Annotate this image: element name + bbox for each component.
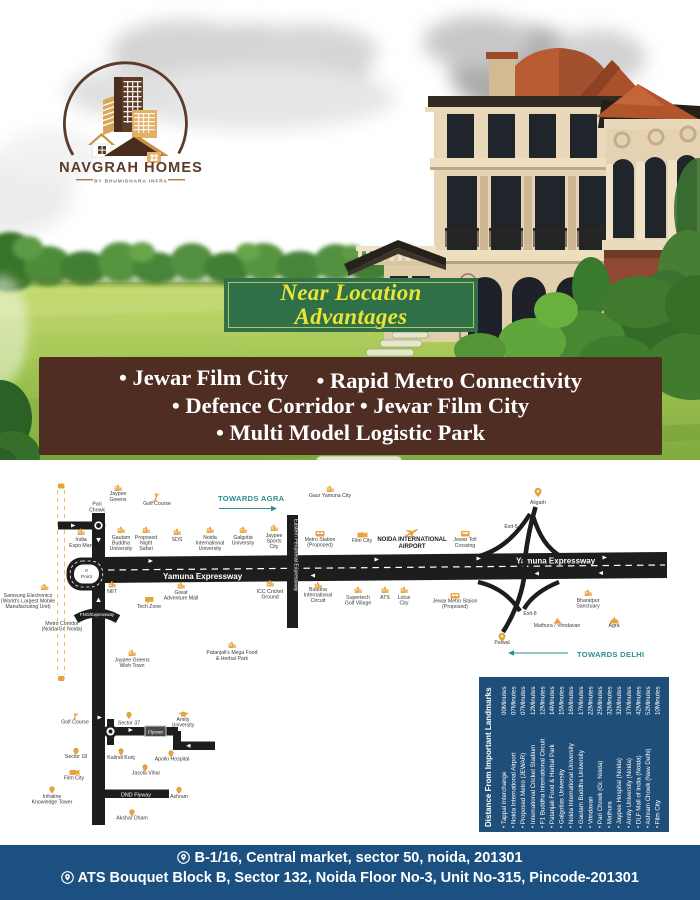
svg-text:07Minutes: 07Minutes bbox=[520, 686, 527, 715]
svg-text:• Patanjali Food & Herbal Park: • Patanjali Food & Herbal Park bbox=[549, 743, 556, 828]
svg-text:Greens: Greens bbox=[109, 497, 126, 503]
svg-text:16Minutes: 16Minutes bbox=[568, 686, 575, 715]
svg-text:07Minutes: 07Minutes bbox=[511, 686, 518, 715]
svg-text:Yamuna Expressway: Yamuna Expressway bbox=[163, 572, 243, 581]
svg-text:Golf Village: Golf Village bbox=[345, 601, 372, 607]
svg-text:SDS: SDS bbox=[172, 537, 183, 543]
svg-text:52Minutes: 52Minutes bbox=[645, 686, 652, 715]
svg-text:Golf Course: Golf Course bbox=[143, 501, 171, 507]
svg-text:Crossing: Crossing bbox=[455, 543, 476, 549]
svg-text:Gaur Yamuna City: Gaur Yamuna City bbox=[309, 493, 352, 499]
svg-text:• Gautam Buddha University: • Gautam Buddha University bbox=[578, 749, 585, 828]
svg-text:• DLF Mall of India (Noida): • DLF Mall of India (Noida) bbox=[635, 755, 642, 828]
svg-text:• F1 Buddha International Circ: • F1 Buddha International Circuit bbox=[539, 739, 546, 828]
svg-text:FNG/Expressway: FNG/Expressway bbox=[80, 612, 115, 617]
svg-text:• Proposed Metro (JEWAR): • Proposed Metro (JEWAR) bbox=[520, 753, 527, 828]
svg-text:• International Cricket Stadiu: • International Cricket Stadium bbox=[530, 745, 537, 828]
svg-text:TOWARDS DELHI: TOWARDS DELHI bbox=[577, 650, 644, 659]
svg-text:Wish Town: Wish Town bbox=[120, 663, 145, 669]
svg-text:Mathura / Vrindavan: Mathura / Vrindavan bbox=[534, 623, 581, 629]
svg-text:• Mathura: • Mathura bbox=[607, 801, 614, 828]
svg-text:Safari: Safari bbox=[139, 546, 153, 552]
svg-text:37Minutes: 37Minutes bbox=[626, 686, 633, 715]
svg-text:Yamuna Expressway: Yamuna Expressway bbox=[516, 557, 596, 566]
svg-text:• Amity University (Noida): • Amity University (Noida) bbox=[626, 758, 633, 828]
svg-text:University: University bbox=[232, 541, 255, 547]
svg-text:Sector 37: Sector 37 bbox=[118, 721, 140, 727]
svg-text:Apollo Hospital: Apollo Hospital bbox=[155, 757, 190, 763]
svg-text:Chowk: Chowk bbox=[89, 508, 105, 514]
svg-text:(Noida-Gr. Noida): (Noida-Gr. Noida) bbox=[42, 627, 83, 633]
svg-text:NOIDA INTERNATIONAL: NOIDA INTERNATIONAL bbox=[377, 537, 447, 543]
svg-text:TOWARDS AGRA: TOWARDS AGRA bbox=[218, 494, 285, 503]
svg-text:• Tappal Interchange: • Tappal Interchange bbox=[501, 771, 508, 828]
svg-text:NAVGRAH HOMES: NAVGRAH HOMES bbox=[59, 160, 203, 176]
svg-text:• Pari Chowk (Gr. Noida): • Pari Chowk (Gr. Noida) bbox=[597, 761, 604, 829]
svg-text:Distance From Important Landma: Distance From Important Landmarks bbox=[484, 687, 493, 827]
svg-text:City: City bbox=[400, 601, 409, 607]
svg-text:Point: Point bbox=[81, 574, 93, 580]
svg-text:Jasola Vihar: Jasola Vihar bbox=[132, 771, 161, 777]
svg-text:Manufacturing Unit): Manufacturing Unit) bbox=[5, 604, 51, 610]
svg-text:NIIT: NIIT bbox=[107, 589, 118, 595]
svg-text:University: University bbox=[172, 723, 195, 729]
svg-text:Kalindi Kunj: Kalindi Kunj bbox=[107, 755, 134, 761]
svg-text:Exit-5: Exit-5 bbox=[504, 524, 517, 530]
svg-text:Circuit: Circuit bbox=[311, 598, 326, 604]
svg-text:12Minutes: 12Minutes bbox=[539, 686, 546, 715]
svg-text:17Minutes: 17Minutes bbox=[578, 686, 585, 715]
svg-text:DND Flyway: DND Flyway bbox=[121, 792, 151, 798]
svg-text:14Minutes: 14Minutes bbox=[549, 686, 556, 715]
svg-text:Expo Mart: Expo Mart bbox=[69, 543, 93, 549]
svg-text:(Proposed): (Proposed) bbox=[307, 543, 333, 549]
svg-text:25Minutes: 25Minutes bbox=[597, 686, 604, 715]
svg-text:& Herbal Park: & Herbal Park bbox=[216, 656, 249, 662]
svg-text:Agra: Agra bbox=[609, 623, 620, 629]
svg-text:Ashram: Ashram bbox=[170, 794, 188, 800]
svg-text:(Proposed): (Proposed) bbox=[442, 604, 468, 610]
svg-text:22Minutes: 22Minutes bbox=[587, 686, 594, 715]
svg-text:Tech Zone: Tech Zone bbox=[137, 604, 161, 610]
svg-text:Sanctuary: Sanctuary bbox=[576, 604, 600, 610]
svg-text:Adventure Mall: Adventure Mall bbox=[164, 596, 199, 602]
svg-text:ATS: ATS bbox=[380, 595, 390, 601]
svg-text:Film City: Film City bbox=[64, 776, 85, 782]
svg-text:AIRPORT: AIRPORT bbox=[399, 544, 426, 550]
svg-text:University: University bbox=[110, 546, 133, 552]
svg-text:• Film City: • Film City bbox=[655, 799, 662, 828]
svg-text:• Noida International Universi: • Noida International University bbox=[568, 742, 575, 828]
svg-text:Eastern Peripheral Expressway: Eastern Peripheral Expressway bbox=[293, 519, 299, 592]
svg-text:Film City: Film City bbox=[352, 538, 373, 544]
svg-text:15Minutes: 15Minutes bbox=[559, 686, 566, 715]
svg-text:10Minutes: 10Minutes bbox=[655, 686, 662, 715]
svg-text:• Ashram Chowk (New Delhi): • Ashram Chowk (New Delhi) bbox=[645, 748, 652, 828]
svg-text:42Minutes: 42Minutes bbox=[635, 686, 642, 715]
svg-text:BY BHUMIDHARA INFRA: BY BHUMIDHARA INFRA bbox=[94, 179, 168, 185]
svg-text:• Jaypee Hospital (Noida): • Jaypee Hospital (Noida) bbox=[616, 758, 623, 828]
svg-text:Knowledge Tower: Knowledge Tower bbox=[32, 800, 73, 806]
svg-text:12Minutes: 12Minutes bbox=[530, 686, 537, 715]
svg-text:City: City bbox=[270, 544, 279, 550]
svg-text:0: 0 bbox=[85, 568, 88, 574]
svg-text:University: University bbox=[199, 546, 222, 552]
svg-text:Ground: Ground bbox=[261, 595, 278, 601]
svg-text:32Minutes: 32Minutes bbox=[607, 686, 614, 715]
svg-text:• Galgotias University: • Galgotias University bbox=[559, 768, 566, 828]
svg-text:32Minutes: 32Minutes bbox=[616, 686, 623, 715]
svg-text:• Vrindavan: • Vrindavan bbox=[587, 796, 594, 828]
svg-text:• Noida International Airport: • Noida International Airport bbox=[511, 752, 518, 828]
svg-text:Aligarh: Aligarh bbox=[530, 500, 546, 506]
svg-text:Flyover: Flyover bbox=[148, 730, 164, 735]
svg-text:Exit-8: Exit-8 bbox=[523, 611, 536, 617]
svg-text:00Minutes: 00Minutes bbox=[501, 686, 508, 715]
